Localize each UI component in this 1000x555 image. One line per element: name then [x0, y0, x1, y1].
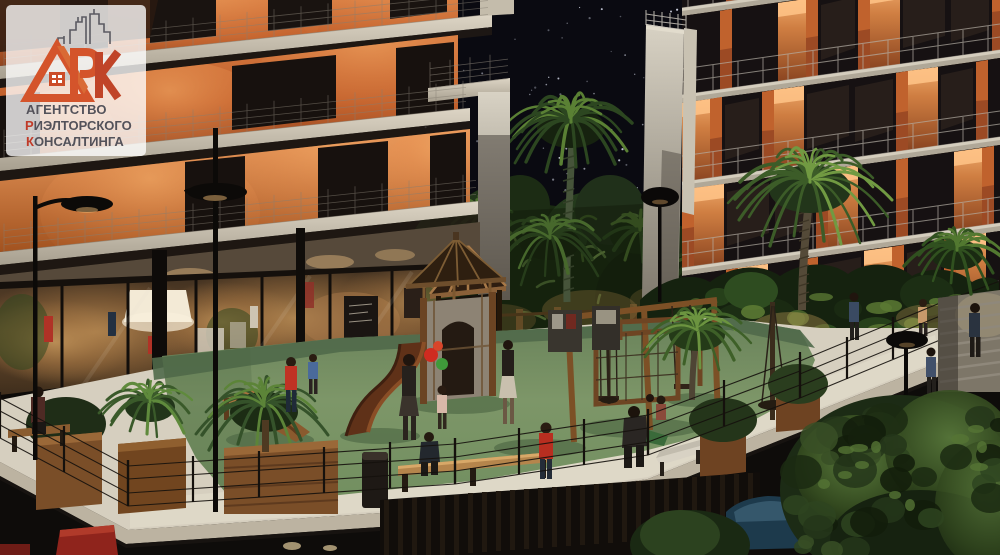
svg-text:КОНСАЛТИНГА: КОНСАЛТИНГА	[26, 134, 124, 149]
svg-text:РИЭЛТОРСКОГО: РИЭЛТОРСКОГО	[25, 118, 132, 133]
svg-text:АГЕНТСТВО: АГЕНТСТВО	[26, 102, 107, 117]
